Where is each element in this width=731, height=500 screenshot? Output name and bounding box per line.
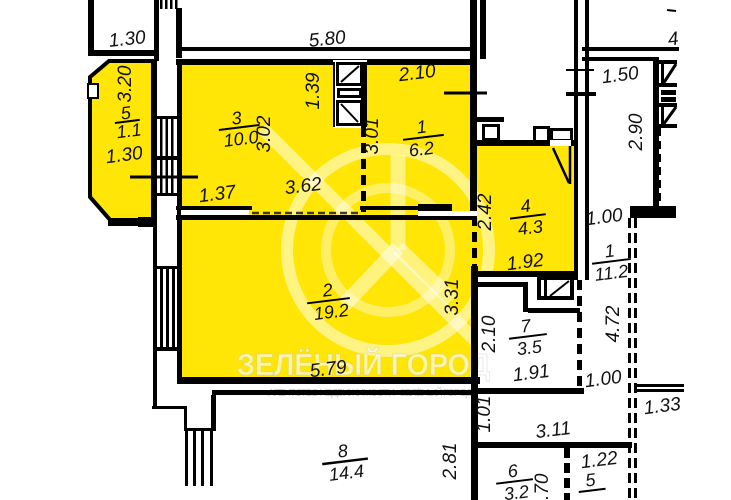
svg-text:4.3: 4.3 [517,216,544,239]
svg-text:2.10: 2.10 [479,315,500,353]
svg-text:1.39: 1.39 [303,72,324,109]
svg-text:1.30: 1.30 [108,27,147,52]
svg-text:1.70: 1.70 [532,473,553,500]
svg-text:2.90: 2.90 [626,113,647,151]
svg-text:2.81: 2.81 [440,443,461,481]
svg-text:6.2: 6.2 [408,138,435,161]
svg-text:2.42: 2.42 [475,193,496,231]
svg-text:4.72: 4.72 [603,305,624,342]
svg-text:3.02: 3.02 [254,115,275,152]
svg-text:3.2: 3.2 [503,481,530,500]
svg-text:19.2: 19.2 [313,300,350,324]
svg-text:3.31: 3.31 [442,279,463,316]
svg-text:1.91: 1.91 [512,361,551,386]
svg-text:1.1: 1.1 [115,119,142,142]
svg-text:3.11: 3.11 [534,418,572,443]
svg-text:ЗЕЛЁНЫЙ ГОРОД: ЗЕЛЁНЫЙ ГОРОД [237,346,490,382]
svg-text:3.20: 3.20 [115,65,136,102]
svg-text:11.2: 11.2 [593,261,629,285]
svg-text:3.5: 3.5 [516,336,544,359]
svg-text:14.4: 14.4 [328,461,365,485]
svg-text:5.80: 5.80 [308,27,347,52]
svg-text:3.01: 3.01 [362,118,383,155]
svg-text:1.01: 1.01 [474,396,495,433]
